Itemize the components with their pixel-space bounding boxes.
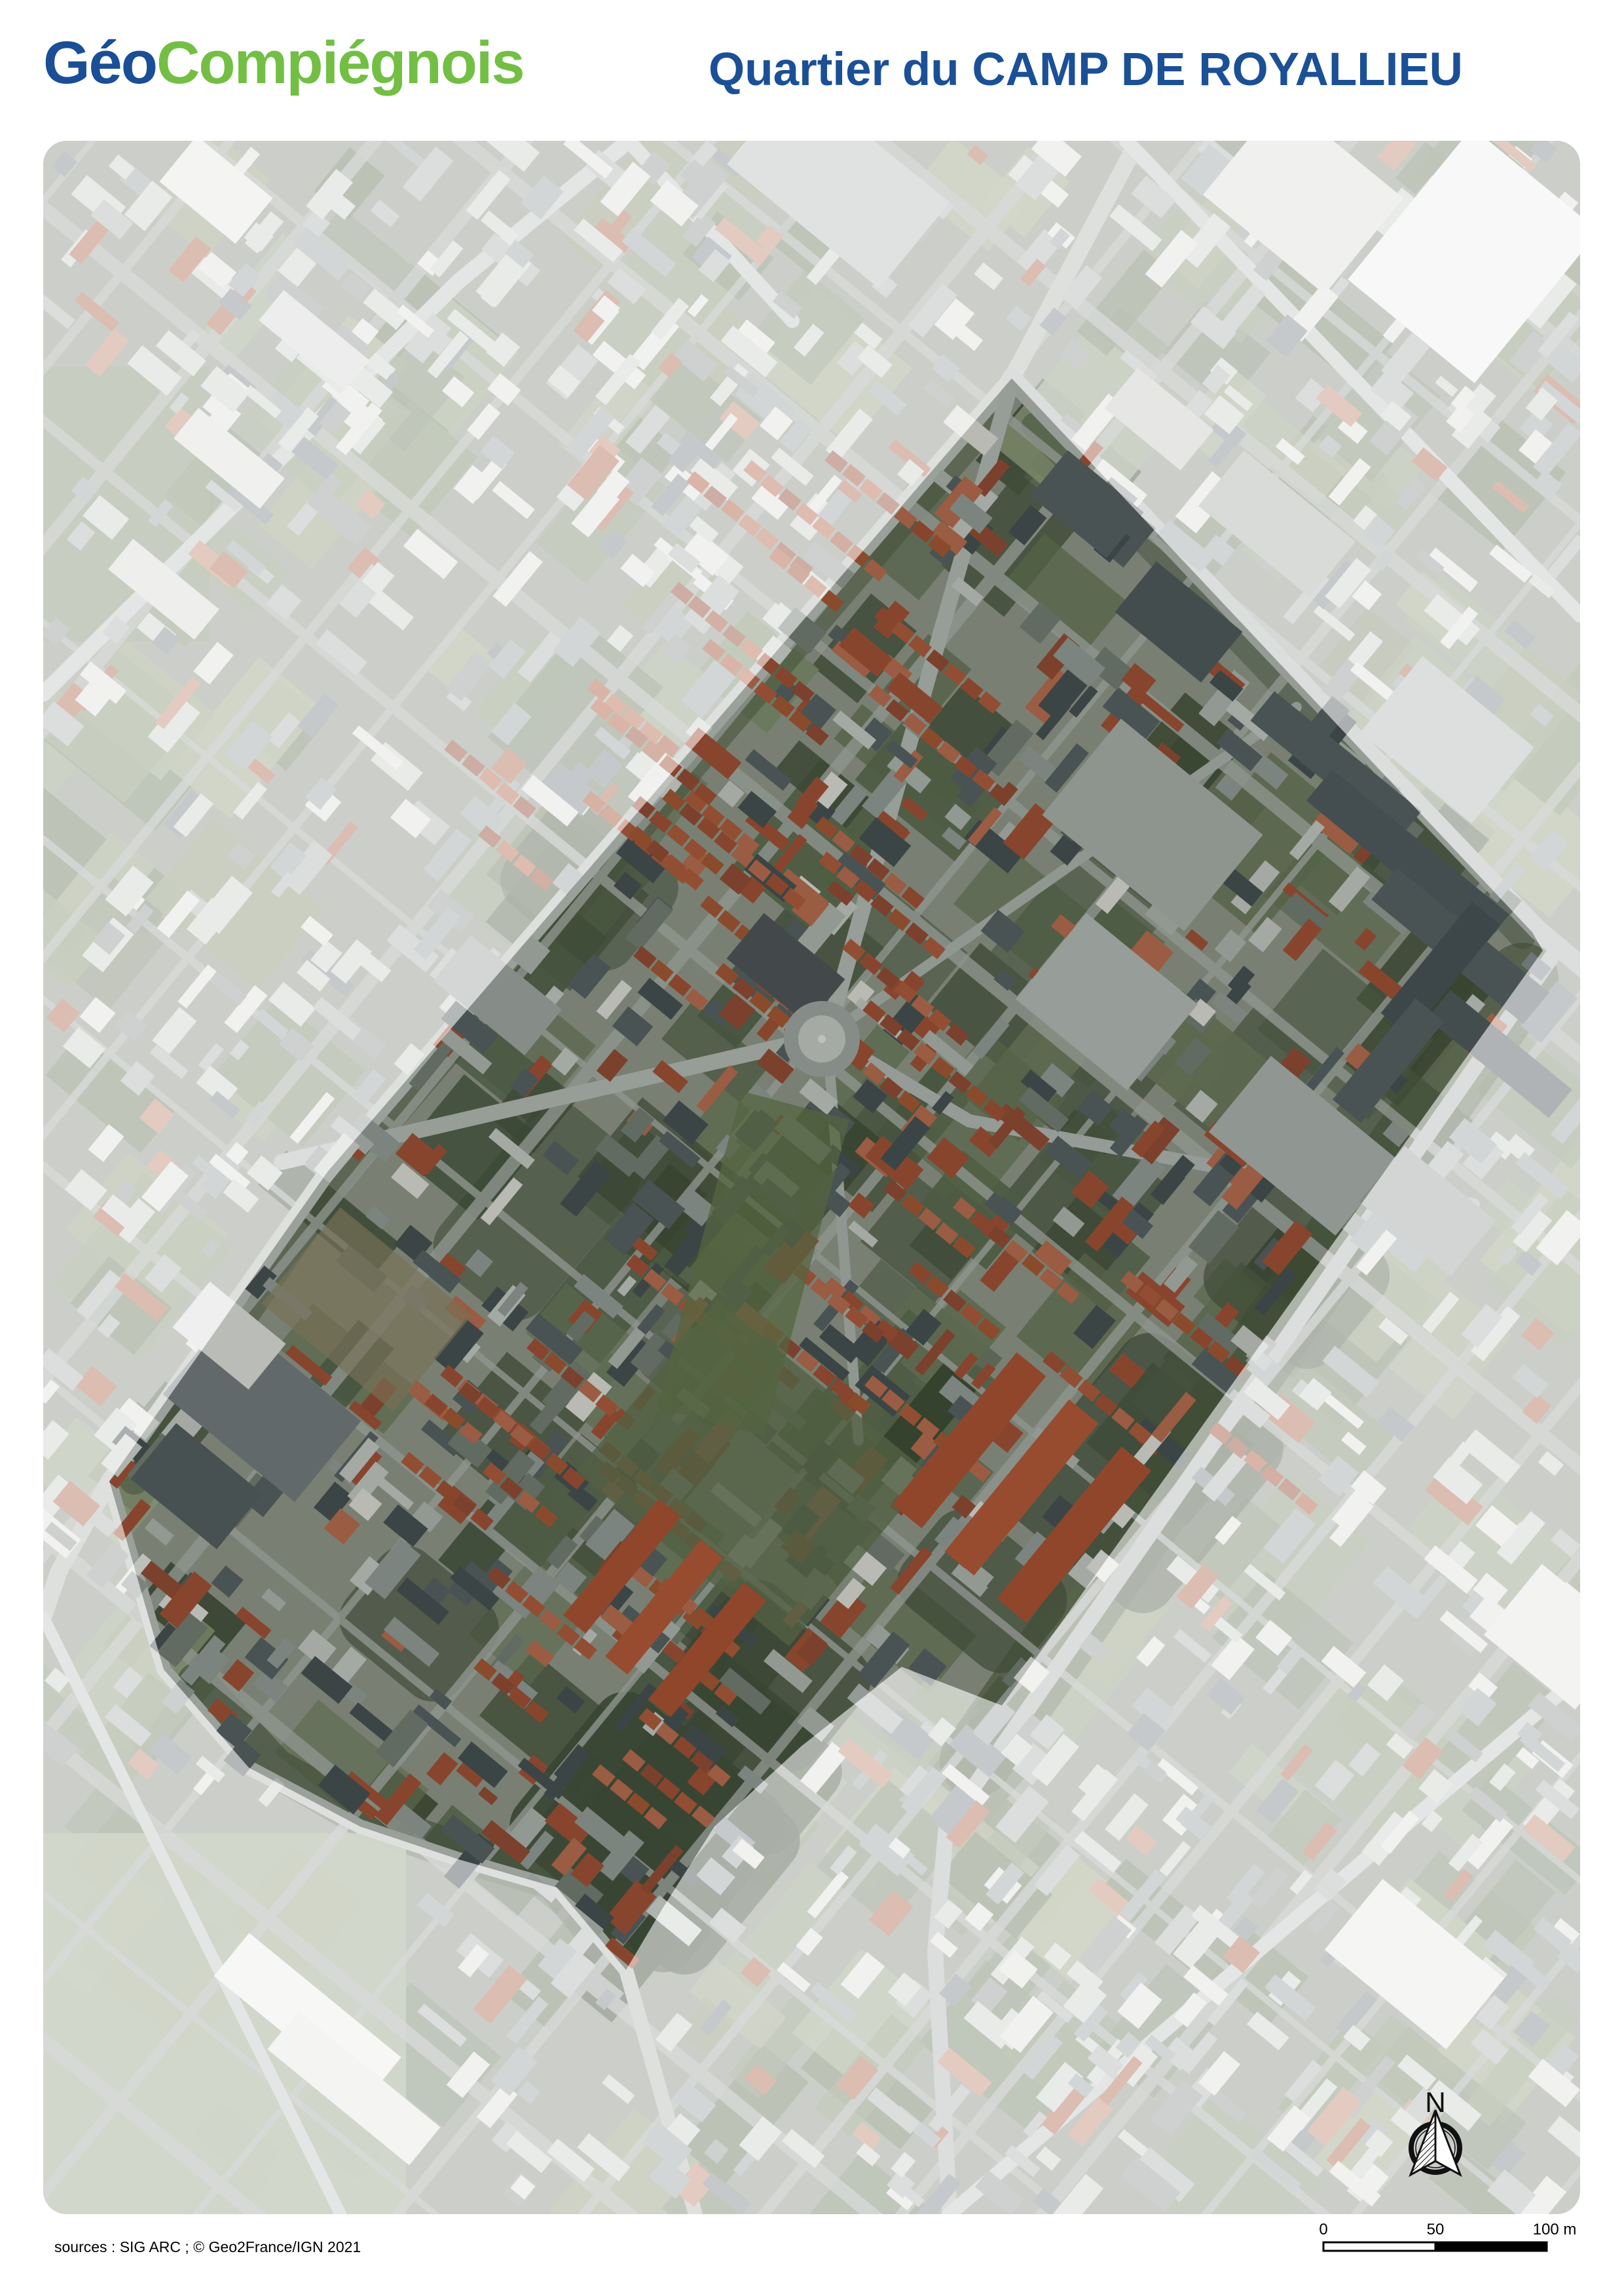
svg-text:50: 50 xyxy=(1427,2221,1445,2238)
svg-text:100 m: 100 m xyxy=(1533,2221,1577,2238)
svg-text:0: 0 xyxy=(1319,2221,1327,2238)
svg-text:N: N xyxy=(1425,2086,1446,2119)
